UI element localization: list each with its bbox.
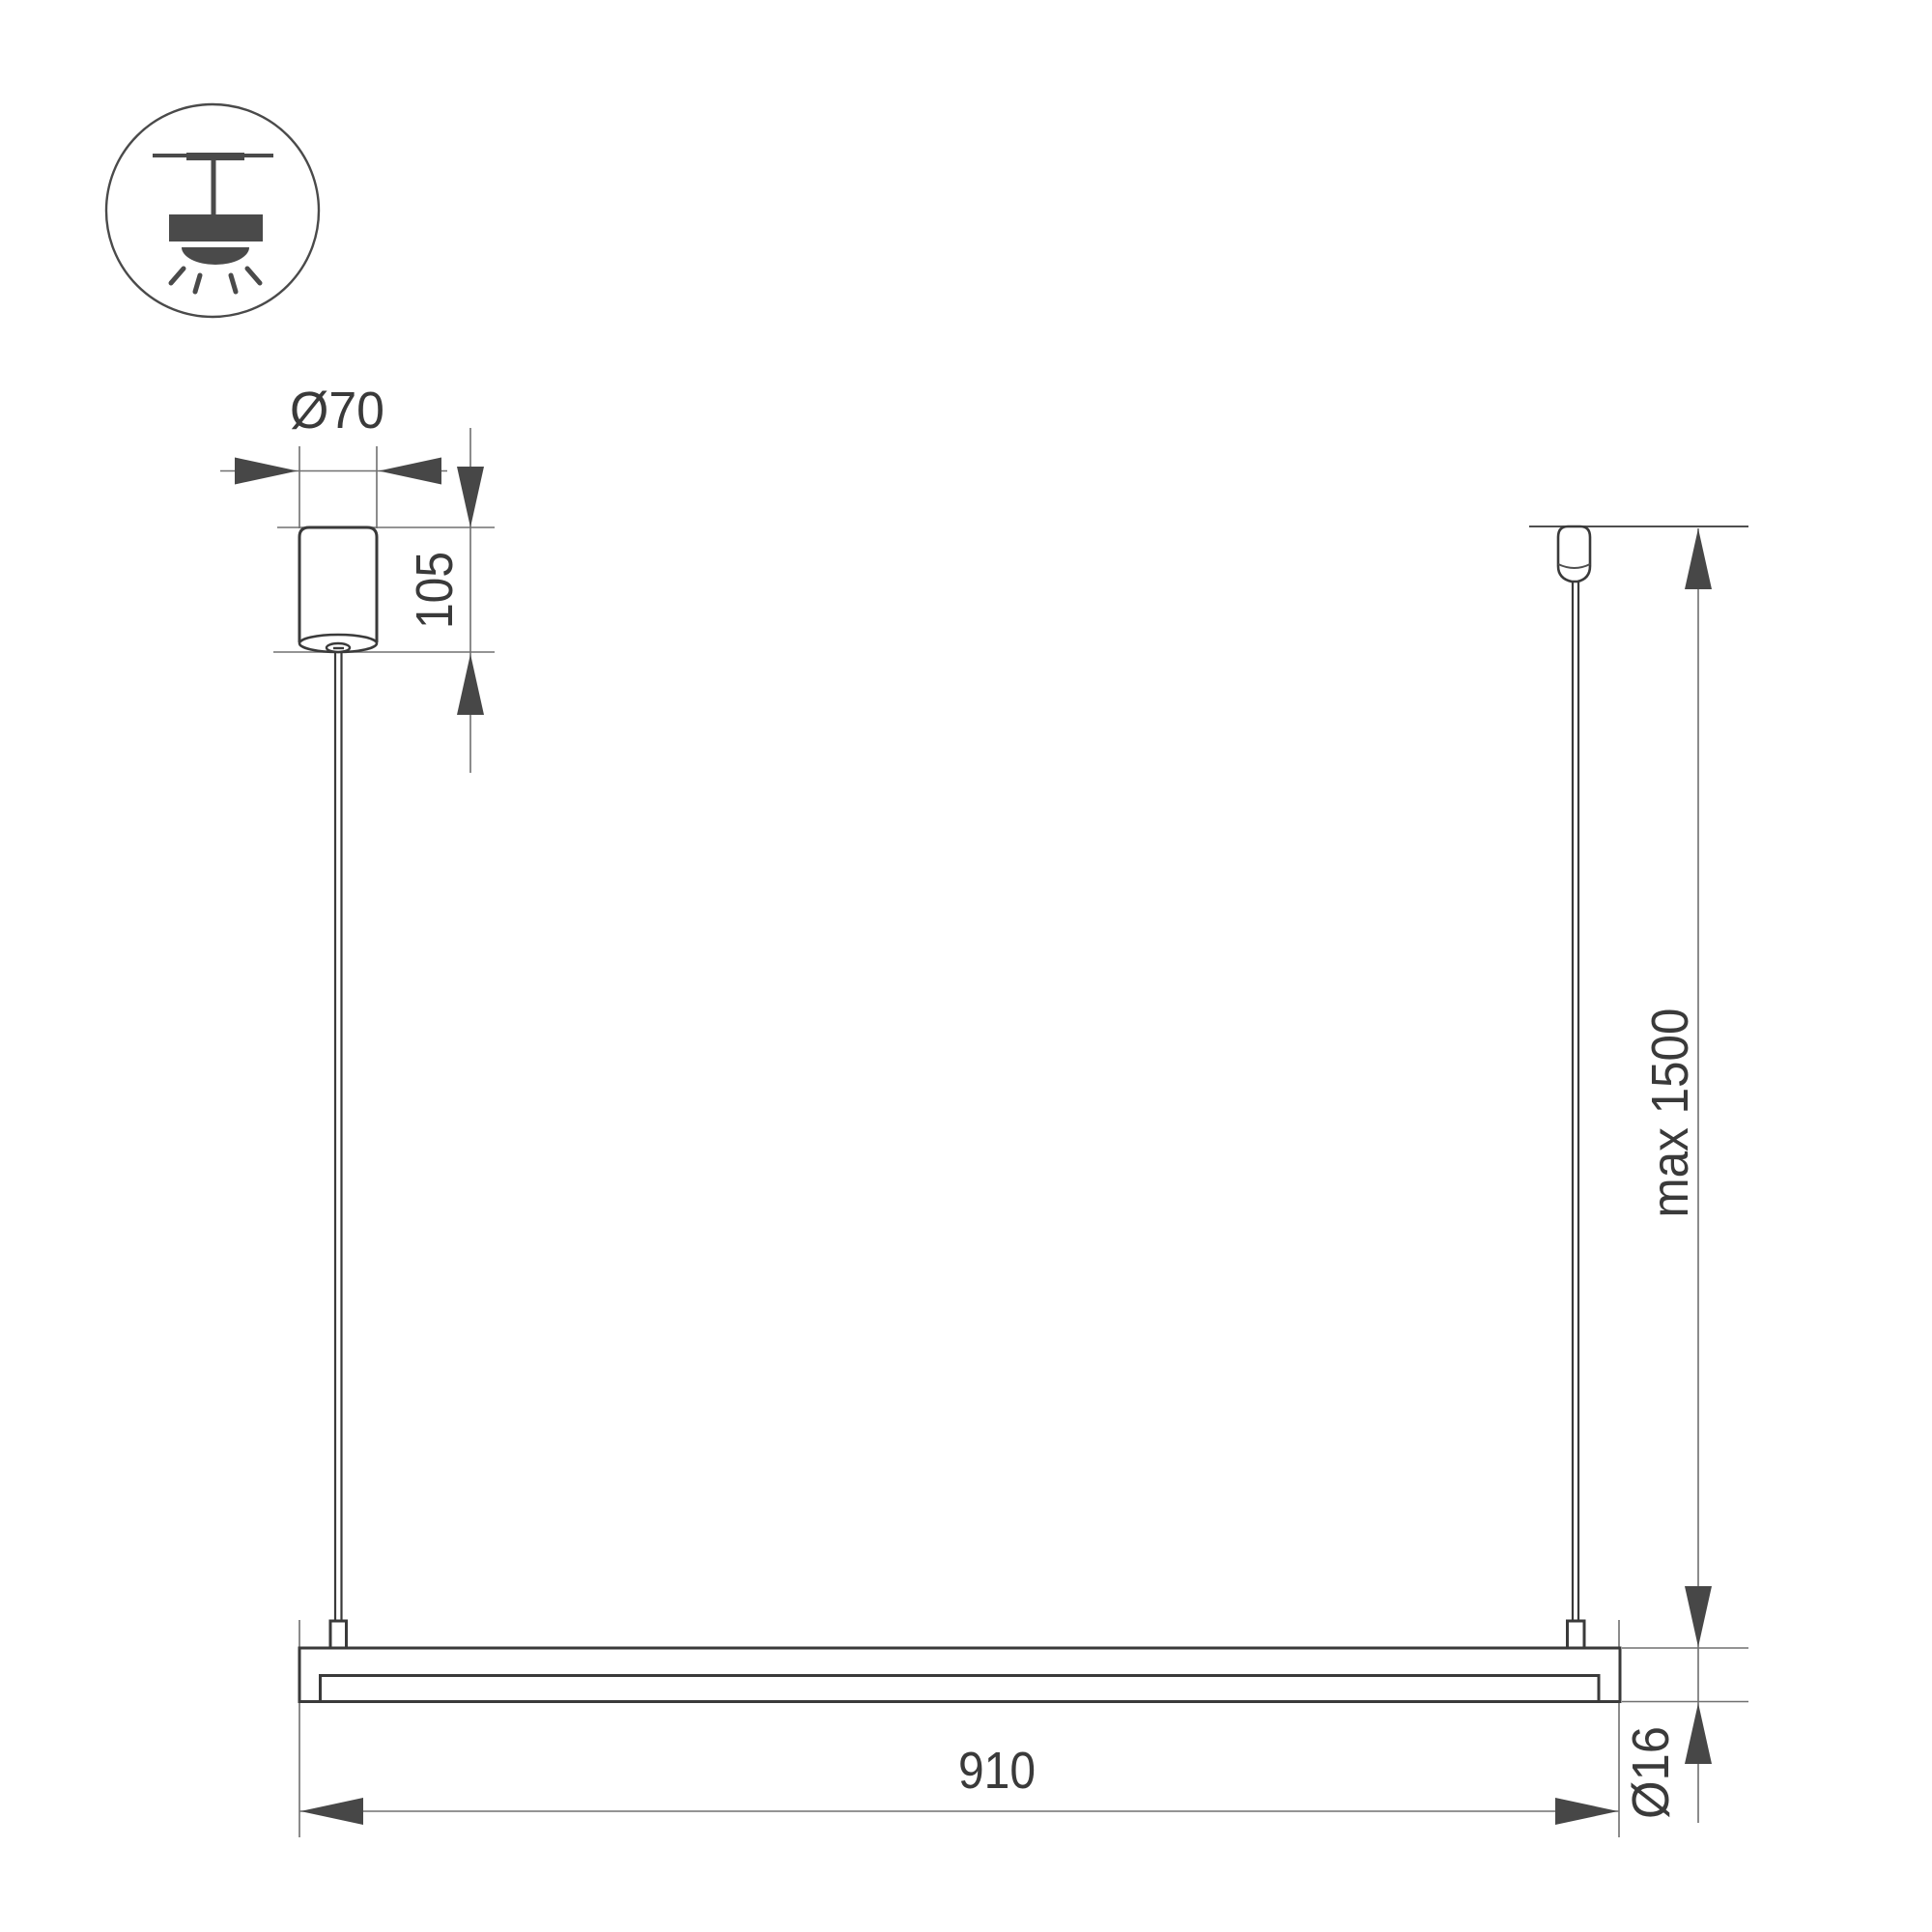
max-suspension-label: max 1500	[1641, 1009, 1699, 1218]
icon-lamp-body	[169, 214, 263, 241]
background	[0, 0, 1932, 1932]
canopy-left	[299, 527, 377, 652]
fixture-length-label: 910	[958, 1742, 1036, 1800]
cable-connector-right	[1568, 1621, 1585, 1648]
canopy-body	[299, 527, 377, 642]
canopy-diameter-label: Ø70	[290, 382, 384, 440]
canopy-right-body	[1558, 526, 1590, 582]
drawing-canvas: Ø70 105	[0, 0, 1932, 1932]
canopy-height-label: 105	[406, 552, 464, 629]
cable-connector-left	[330, 1621, 347, 1648]
pendant-light-dimension-drawing: Ø70 105	[0, 0, 1932, 1932]
tube-diameter-label: Ø16	[1622, 1726, 1680, 1819]
